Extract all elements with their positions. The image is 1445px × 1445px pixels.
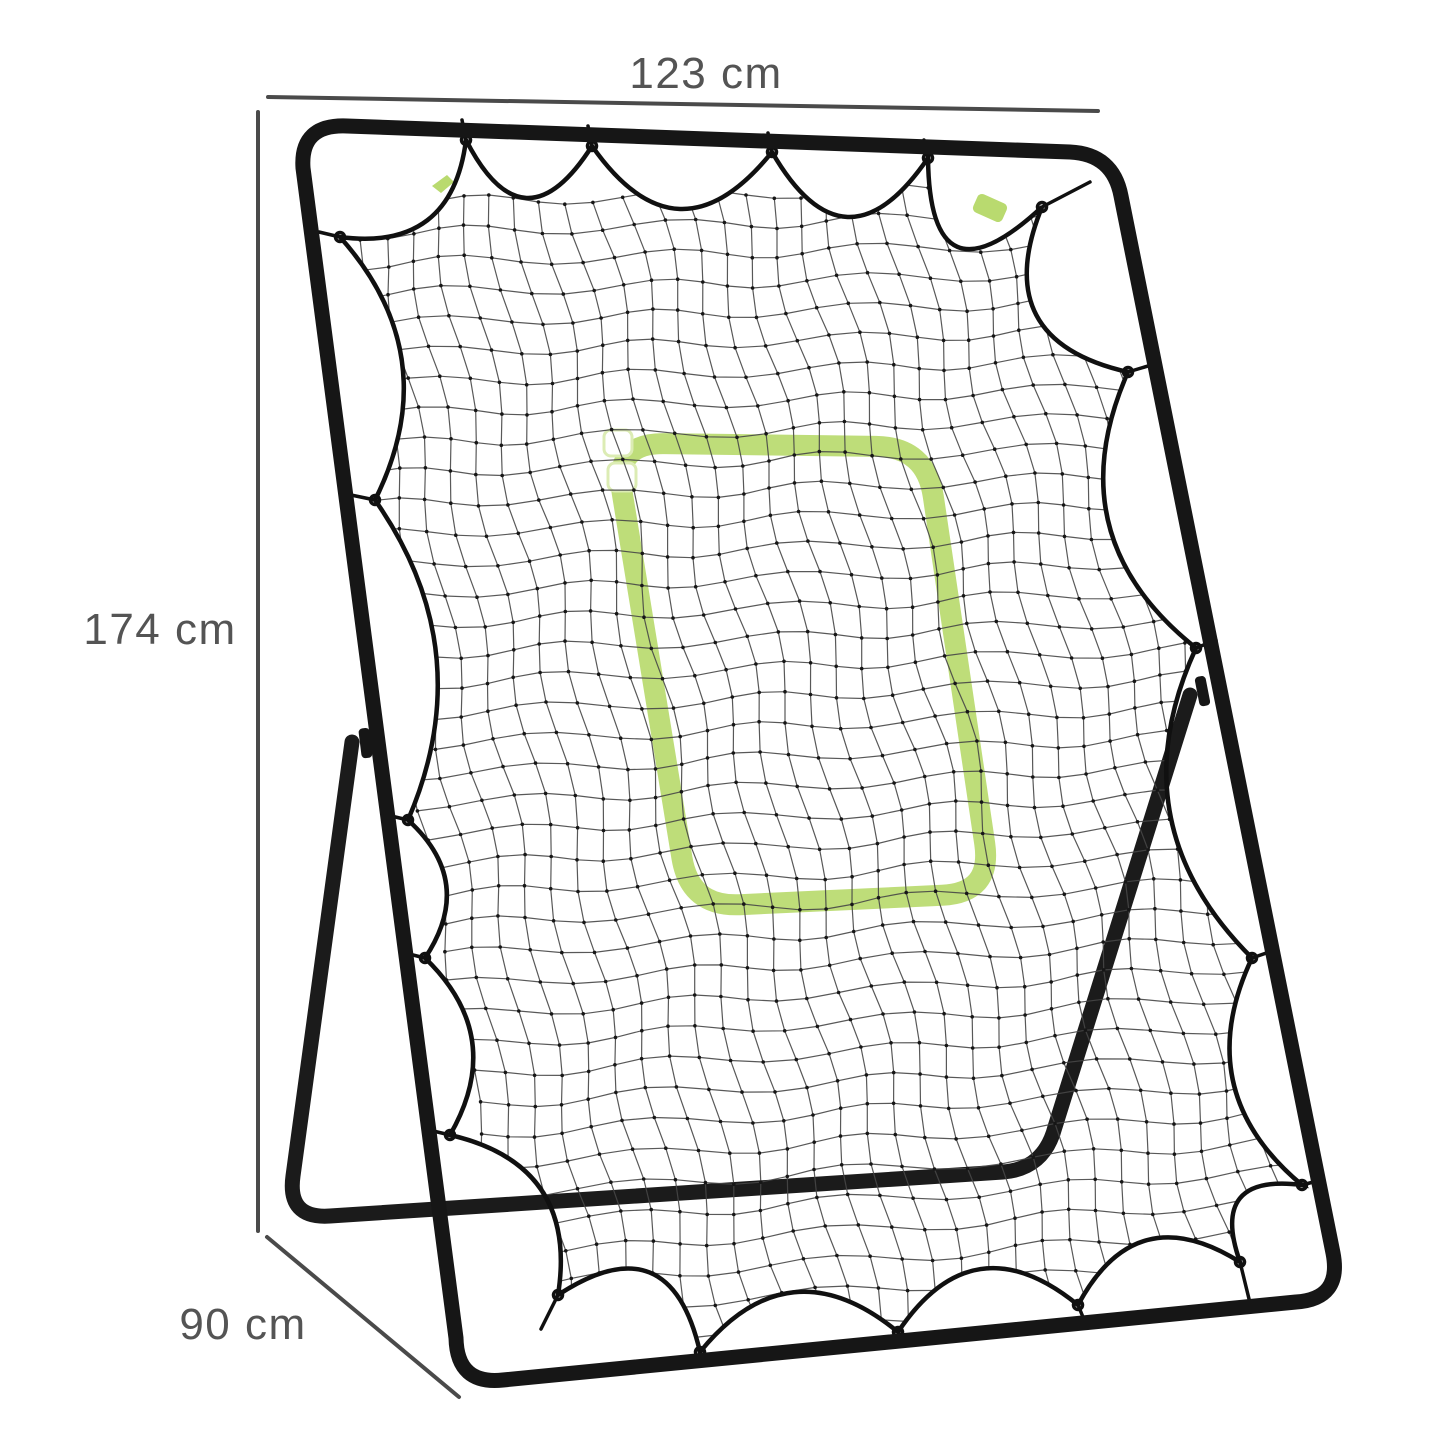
- strike-zone-outline: [621, 444, 986, 905]
- depth-dimension-label: 90 cm: [179, 1300, 306, 1349]
- bungee-hook: [1042, 182, 1090, 207]
- width-dimension-line: [268, 97, 1098, 111]
- rebounder-net-illustration: 123 cm 174 cm 90 cm: [0, 0, 1445, 1445]
- right-pivot-bracket: [1194, 675, 1211, 707]
- net-border-rope: [340, 140, 1302, 1352]
- bungee-hook: [1240, 1262, 1250, 1303]
- front-frame-tube: [303, 126, 1335, 1381]
- net-green-marker-right: [971, 192, 1008, 223]
- target-corner-patch-bottom: [608, 463, 636, 491]
- target-corner-patch-top: [604, 430, 632, 456]
- product-dimension-illustration: 123 cm 174 cm 90 cm: [0, 0, 1445, 1445]
- width-dimension-label: 123 cm: [629, 49, 782, 98]
- height-dimension-label: 174 cm: [83, 605, 236, 654]
- net-mesh: [318, 178, 1328, 1349]
